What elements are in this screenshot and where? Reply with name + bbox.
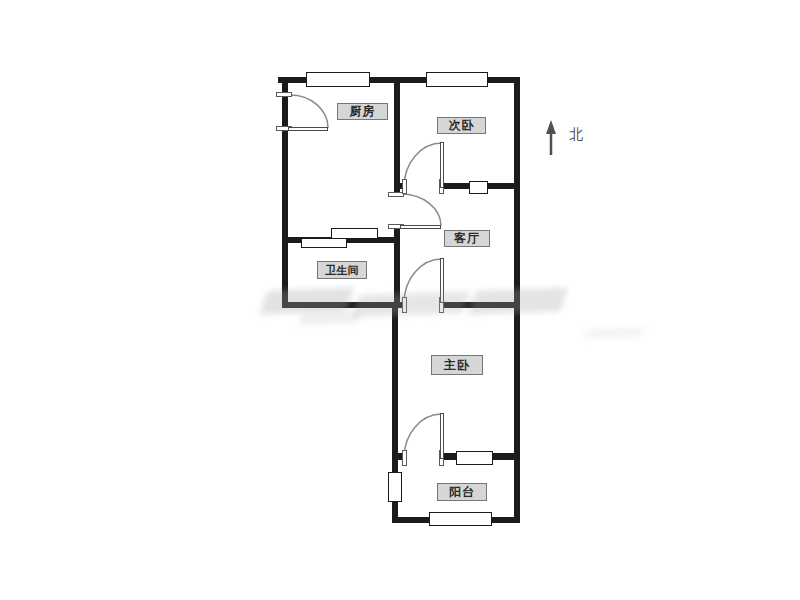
door-leaf-living: [400, 225, 441, 229]
room-label-kitchen-text: 厨房: [350, 103, 376, 120]
room-label-secondary-bedroom: 次卧: [437, 117, 486, 134]
window-master-balcony: [456, 451, 493, 465]
door-arc-balcony: [404, 414, 442, 458]
door-arc-master-bedroom: [404, 259, 442, 303]
door-arc-secondary-bedroom: [404, 143, 442, 187]
door-leaf-kitchen-entry: [288, 127, 328, 131]
floorplan-canvas: 厨房 次卧 客厅 卫生间 主卧 阳台 北: [0, 0, 800, 600]
room-label-master-bedroom-text: 主卧: [444, 357, 470, 374]
north-label: 北: [569, 126, 583, 144]
window-balcony-bottom: [429, 512, 492, 526]
window-secondary-bedroom-pass: [469, 181, 488, 194]
window-secondary-bedroom-top: [426, 72, 488, 87]
compass: 北: [538, 112, 618, 164]
jamb-balcony-door-left: [402, 450, 407, 466]
room-label-living-room-text: 客厅: [454, 230, 480, 247]
door-leaf-master-bedroom: [440, 258, 444, 303]
jamb-kitchen-entry-top: [276, 92, 292, 97]
room-label-secondary-bedroom-text: 次卧: [449, 117, 475, 134]
room-label-kitchen: 厨房: [337, 103, 388, 120]
door-arc-living: [401, 194, 441, 226]
room-label-balcony: 阳台: [437, 483, 487, 501]
jamb-master-door-left: [402, 297, 407, 313]
room-label-master-bedroom: 主卧: [431, 355, 483, 375]
door-leaf-balcony: [440, 413, 444, 459]
room-label-bathroom: 卫生间: [317, 261, 367, 279]
room-label-living-room: 客厅: [444, 230, 490, 247]
sliding-door-panel-lower: [301, 238, 347, 248]
door-arcs-layer: [0, 0, 800, 600]
room-label-bathroom-text: 卫生间: [326, 263, 359, 278]
room-label-balcony-text: 阳台: [449, 484, 475, 501]
door-leaf-secondary-bedroom: [440, 142, 444, 188]
window-kitchen-top: [306, 72, 370, 87]
jamb-secondary-door-left: [402, 179, 407, 194]
door-arc-kitchen-entry: [290, 95, 328, 128]
window-balcony-left: [388, 472, 402, 502]
